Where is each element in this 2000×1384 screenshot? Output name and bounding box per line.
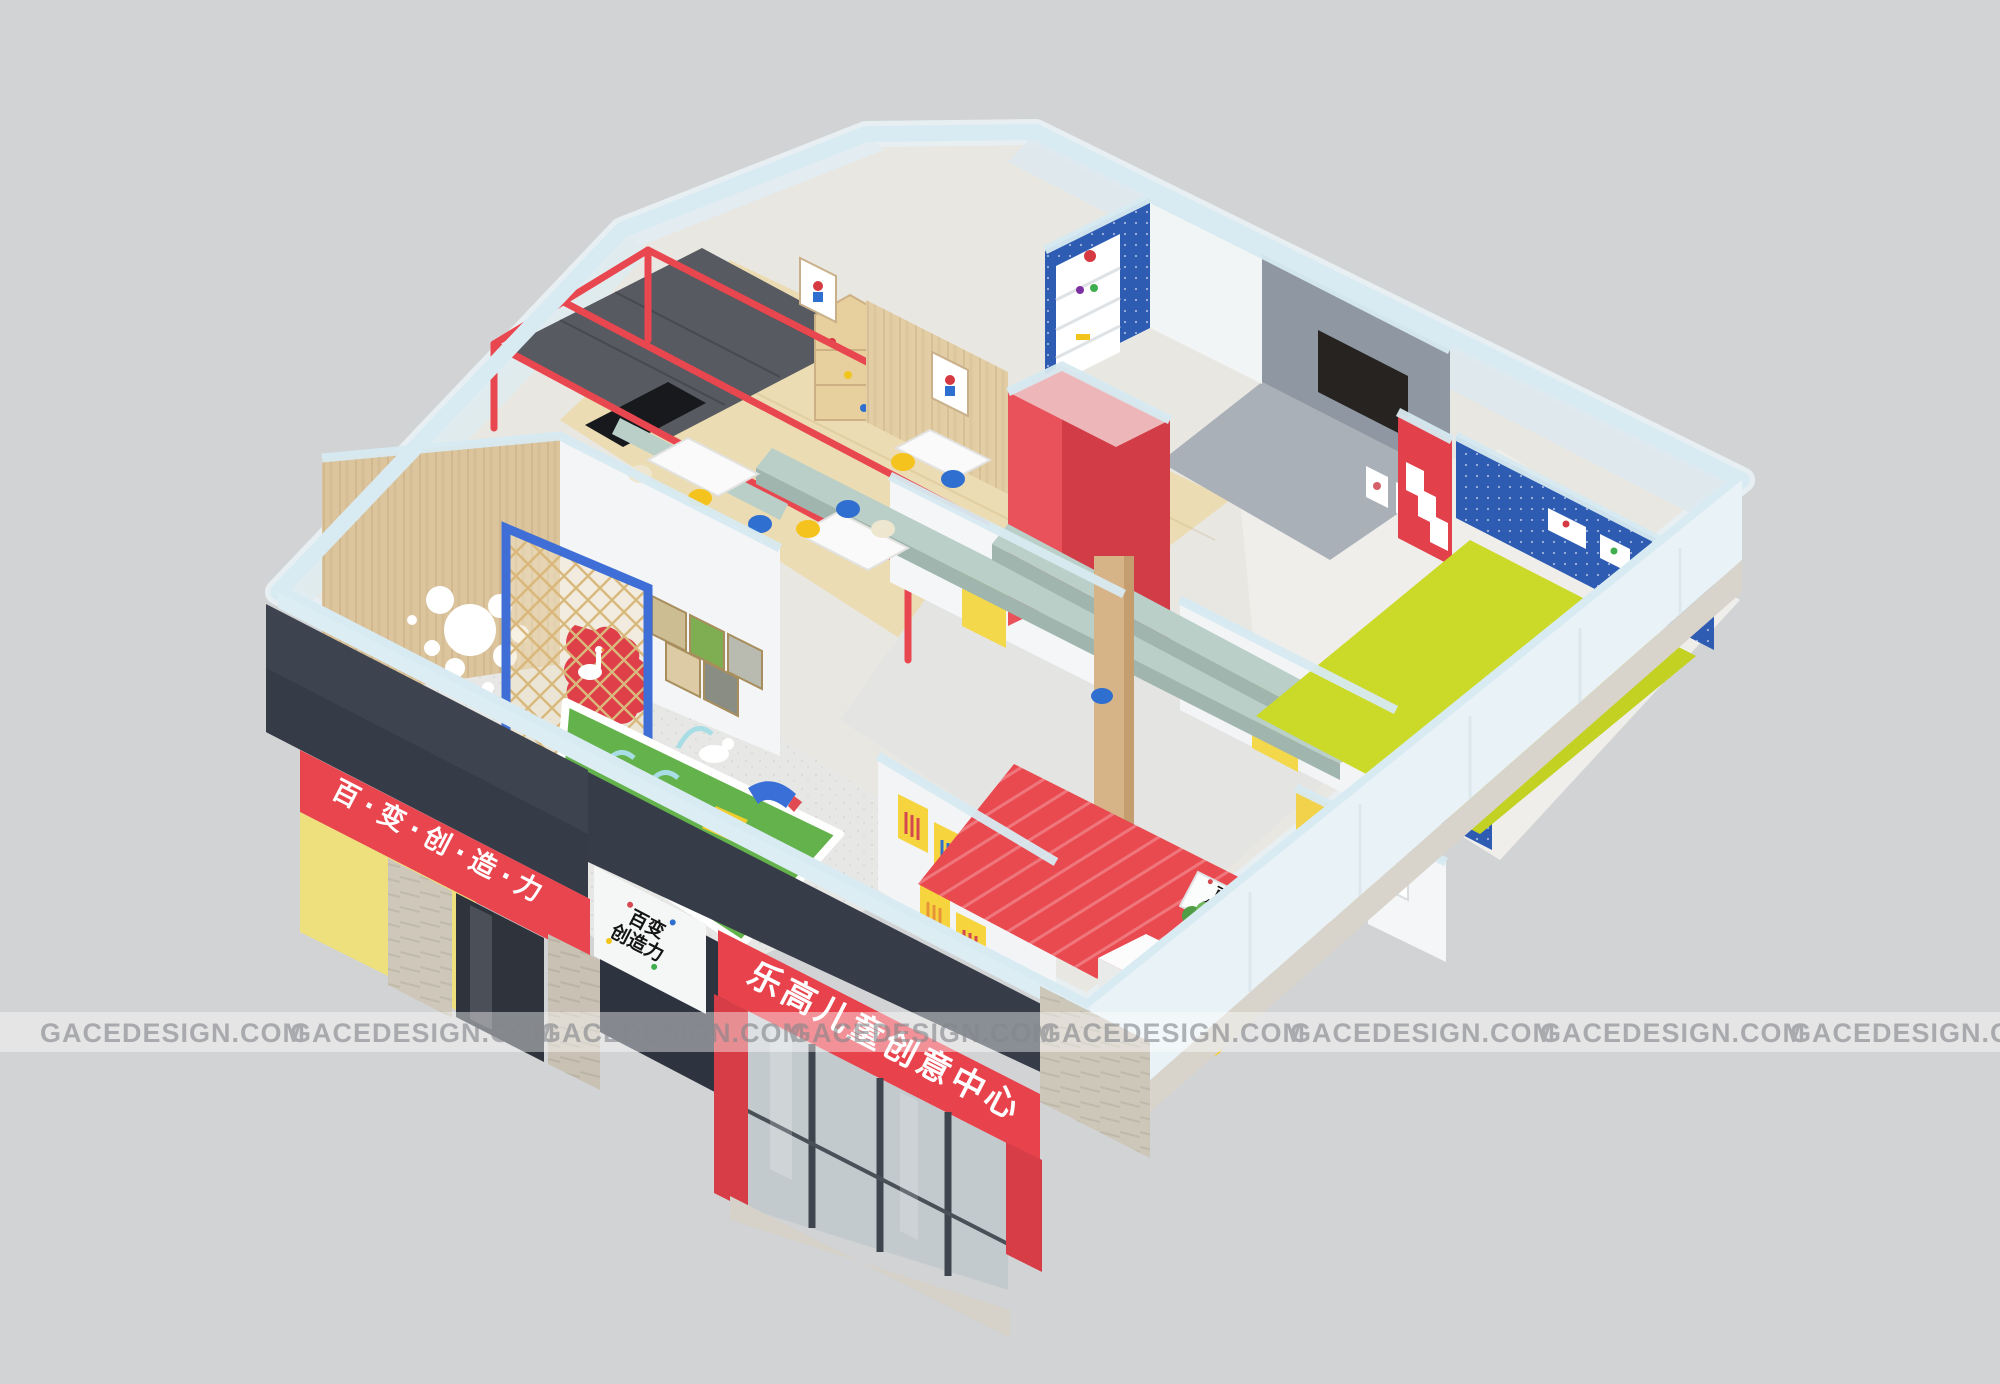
watermark-text: GACEDESIGN.COM bbox=[1790, 1018, 2000, 1048]
watermark-text: GACEDESIGN.COM bbox=[1540, 1018, 1806, 1048]
watermark-text: GACEDESIGN.COM bbox=[1040, 1018, 1306, 1048]
toy-dot bbox=[1563, 521, 1570, 528]
toy-mask2 bbox=[1090, 284, 1098, 292]
toy-yellow bbox=[844, 371, 852, 379]
toy-mask bbox=[1076, 286, 1084, 294]
toy-dot bbox=[1611, 548, 1618, 555]
render-canvas: 百变 创造力 bbox=[0, 0, 2000, 1384]
kid-chair-blue bbox=[1091, 688, 1113, 704]
watermark-text: GACEDESIGN.COM bbox=[790, 1018, 1056, 1048]
window-reflection bbox=[470, 905, 492, 1030]
toy-red-figure bbox=[1084, 250, 1096, 262]
watermark-band: GACEDESIGN.COM GACEDESIGN.COM GACEDESIGN… bbox=[0, 1012, 2000, 1052]
watermark-text: GACEDESIGN.COM bbox=[1290, 1018, 1556, 1048]
watermark-text: GACEDESIGN.COM bbox=[40, 1018, 306, 1048]
watermark-texts: GACEDESIGN.COM GACEDESIGN.COM GACEDESIGN… bbox=[40, 1018, 2000, 1048]
watermark-text: GACEDESIGN.COM bbox=[540, 1018, 806, 1048]
toy-car bbox=[1076, 334, 1090, 340]
watermark-text: GACEDESIGN.COM bbox=[290, 1018, 556, 1048]
entry-red-jamb bbox=[1006, 1142, 1042, 1272]
poster-photo-dot bbox=[1373, 482, 1381, 490]
isometric-floorplan-render: 百变 创造力 bbox=[0, 0, 2000, 1384]
glass-reflection bbox=[900, 1092, 918, 1240]
